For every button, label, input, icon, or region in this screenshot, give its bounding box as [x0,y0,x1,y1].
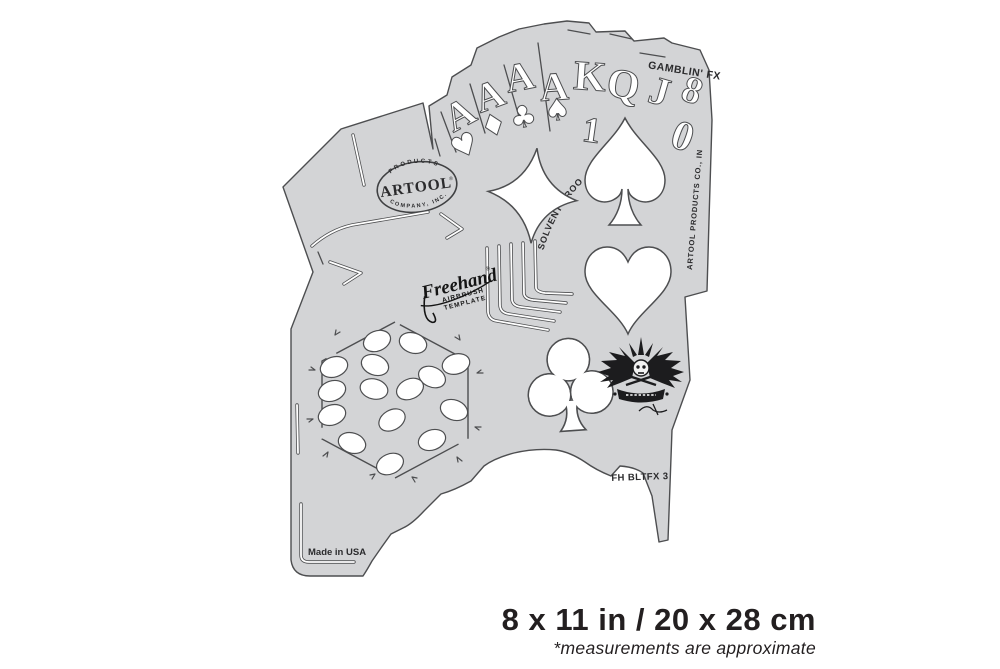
caption: 8 x 11 in / 20 x 28 cm *measurements are… [502,604,816,659]
stencil-illustration: A A A A K Q J 8 1 0 ♥ ♦ ♣ ♠ GAMBLIN' FX … [0,0,1000,669]
card-letter-king: K [572,53,608,101]
product-image: A A A A K Q J 8 1 0 ♥ ♦ ♣ ♠ GAMBLIN' FX … [0,0,1000,669]
approximate-note: *measurements are approximate [502,638,816,659]
sku-label: FH BLTFX 3 [611,471,668,484]
size-text: 8 x 11 in / 20 x 28 cm [502,604,816,637]
small-spade-icon: ♠ [543,92,572,129]
origin-label: Made in USA [308,547,366,558]
